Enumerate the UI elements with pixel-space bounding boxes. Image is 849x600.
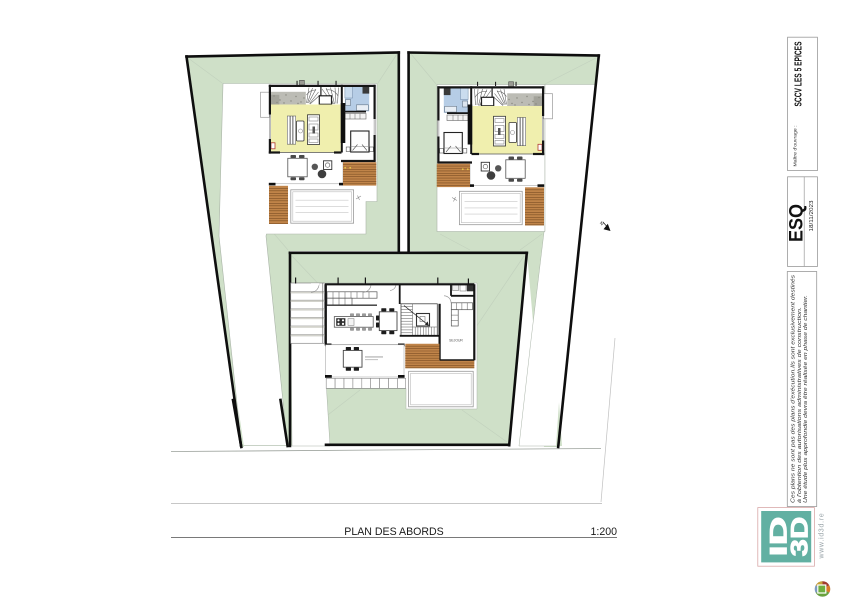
svg-text:Ces plans ne sont pas des plan: Ces plans ne sont pas des plans d'exécut… [791, 274, 797, 503]
svg-text:18/11/2023: 18/11/2023 [809, 201, 815, 232]
svg-text:SCCV LES 5 EPICES: SCCV LES 5 EPICES [794, 41, 805, 106]
svg-text:www.id3d.re: www.id3d.re [819, 513, 826, 560]
svg-text:SEJOUR: SEJOUR [449, 339, 463, 343]
svg-text:à l'obtention des autorisation: à l'obtention des autorisations administ… [797, 307, 803, 503]
svg-text:3D: 3D [787, 517, 814, 557]
svg-text:Maître d'ouvrage :: Maître d'ouvrage : [793, 126, 799, 167]
svg-text:ESQ: ESQ [787, 204, 808, 242]
svg-text:1:200: 1:200 [590, 526, 617, 538]
svg-text:PLAN DES ABORDS: PLAN DES ABORDS [344, 526, 444, 538]
svg-text:Une étude plus approfondie dev: Une étude plus approfondie devra être ré… [803, 295, 809, 503]
